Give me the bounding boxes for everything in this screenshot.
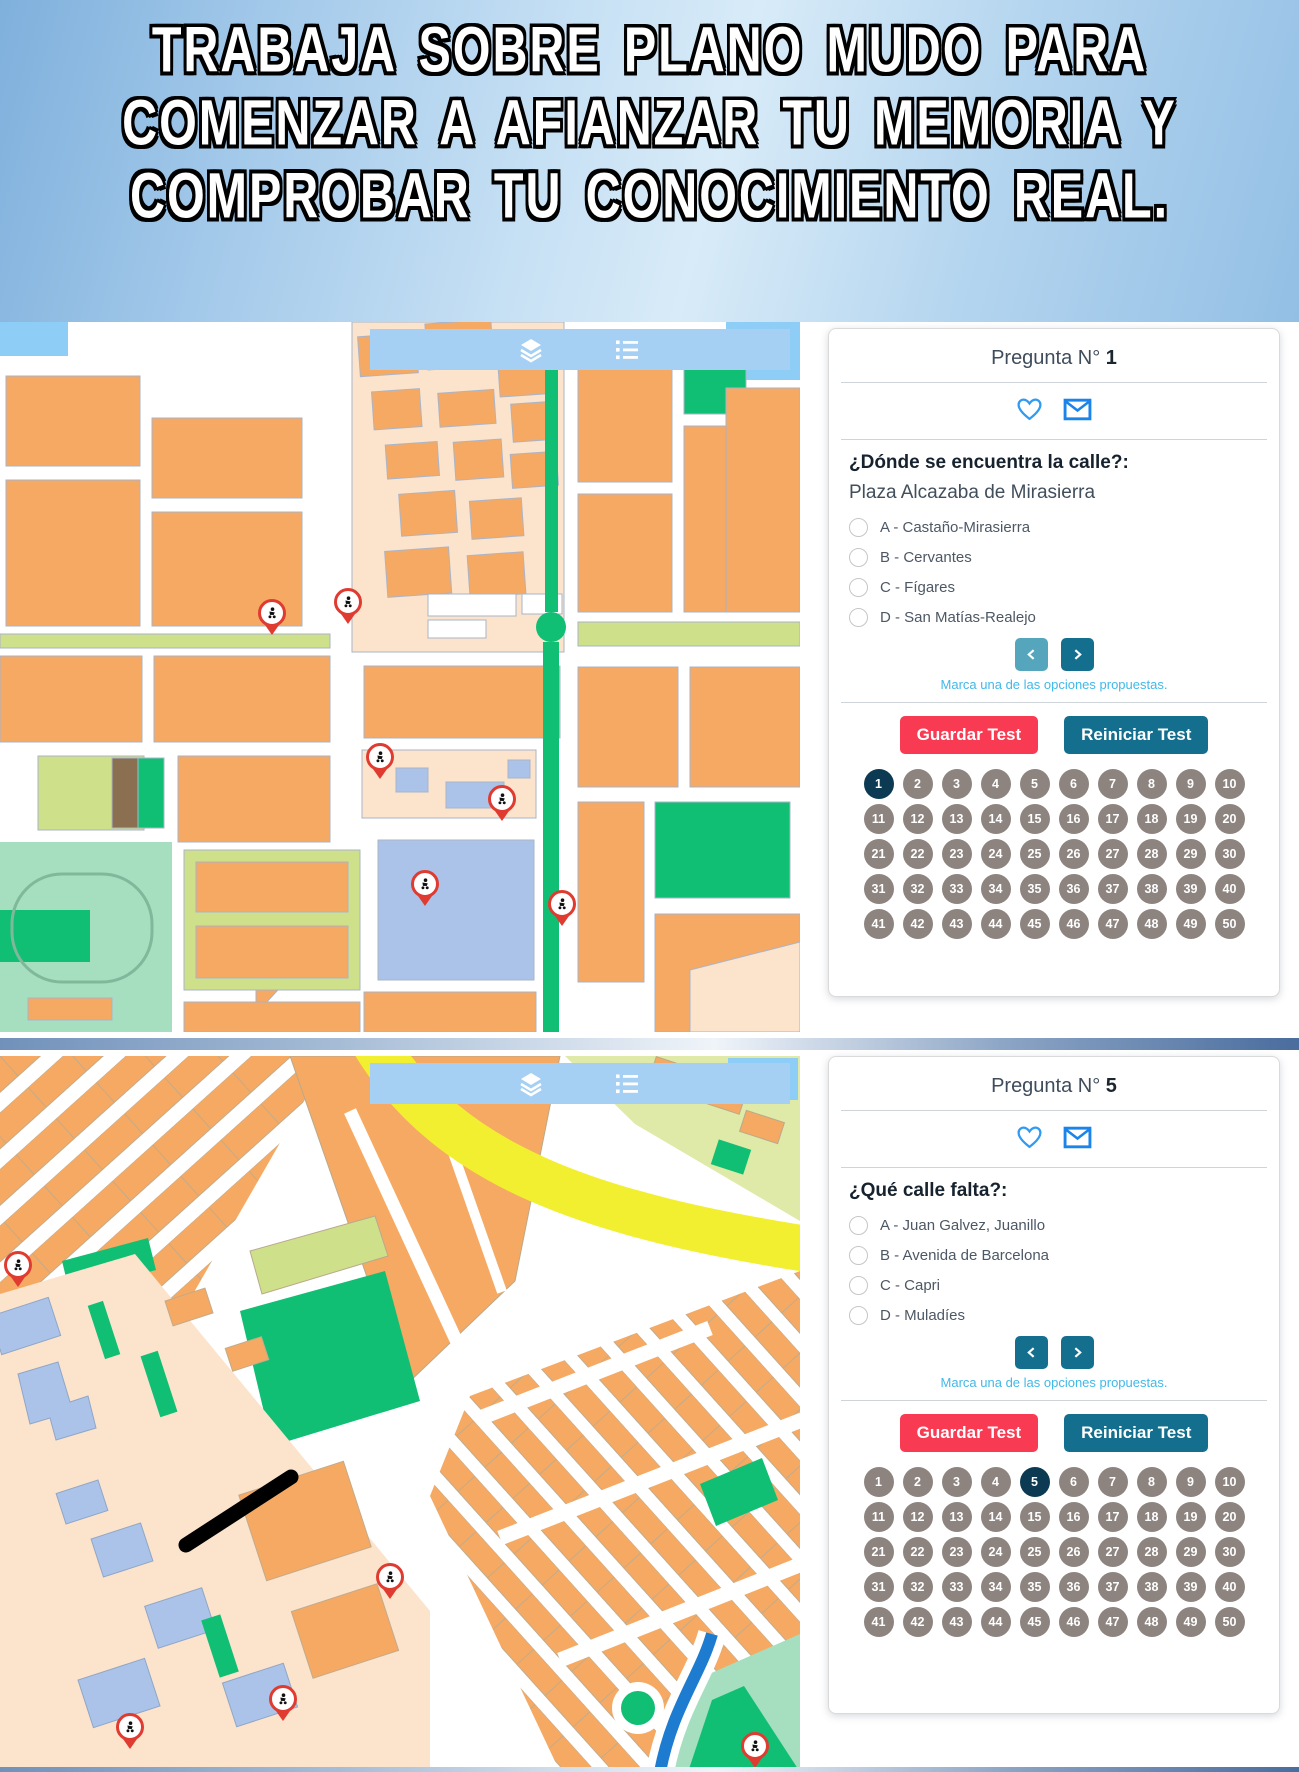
question-number-46[interactable]: 46 bbox=[1059, 909, 1089, 939]
answer-options: A - Juan Galvez, Juanillo B - Avenida de… bbox=[849, 1216, 1259, 1325]
question-number-29[interactable]: 29 bbox=[1176, 1537, 1206, 1567]
radio-button[interactable] bbox=[849, 578, 868, 597]
question-number-38[interactable]: 38 bbox=[1137, 874, 1167, 904]
question-number-11[interactable]: 11 bbox=[864, 804, 894, 834]
question-number-45[interactable]: 45 bbox=[1020, 909, 1050, 939]
map-marker-pin[interactable] bbox=[376, 1563, 404, 1601]
answer-option-a[interactable]: A - Castaño-Mirasierra bbox=[849, 518, 1259, 537]
question-number-16[interactable]: 16 bbox=[1059, 1502, 1089, 1532]
question-number-15[interactable]: 15 bbox=[1020, 1502, 1050, 1532]
map-toolbar bbox=[370, 329, 790, 370]
question-number-16[interactable]: 16 bbox=[1059, 804, 1089, 834]
question-number-23[interactable]: 23 bbox=[942, 1537, 972, 1567]
question-panel-2: Pregunta N° 5 ¿Qué calle falta?: A - Jua… bbox=[828, 1056, 1280, 1714]
question-number-7[interactable]: 7 bbox=[1098, 1467, 1128, 1497]
question-street-name: Plaza Alcazaba de Mirasierra bbox=[849, 482, 1259, 504]
answer-option-c[interactable]: C - Fígares bbox=[849, 578, 1259, 597]
instruction-hint: Marca una de las opciones propuestas. bbox=[849, 1375, 1259, 1390]
question-number-37[interactable]: 37 bbox=[1098, 1572, 1128, 1602]
question-number-7[interactable]: 7 bbox=[1098, 769, 1128, 799]
question-number-12[interactable]: 12 bbox=[903, 804, 933, 834]
option-label: B - Cervantes bbox=[880, 549, 972, 566]
question-number-34[interactable]: 34 bbox=[981, 1572, 1011, 1602]
question-number-22[interactable]: 22 bbox=[903, 1537, 933, 1567]
question-number-6[interactable]: 6 bbox=[1059, 1467, 1089, 1497]
question-number-25[interactable]: 25 bbox=[1020, 1537, 1050, 1567]
question-number-36[interactable]: 36 bbox=[1059, 1572, 1089, 1602]
question-number-20[interactable]: 20 bbox=[1215, 1502, 1245, 1532]
question-tools bbox=[849, 393, 1259, 429]
question-number-grid: 1234567891011121314151617181920212223242… bbox=[860, 769, 1248, 939]
question-number-40[interactable]: 40 bbox=[1215, 1572, 1245, 1602]
question-number-29[interactable]: 29 bbox=[1176, 839, 1206, 869]
radio-button[interactable] bbox=[849, 1306, 868, 1325]
question-number-49[interactable]: 49 bbox=[1176, 909, 1206, 939]
map-marker-pin[interactable] bbox=[366, 743, 394, 781]
question-nav bbox=[849, 638, 1259, 671]
divider bbox=[841, 1110, 1267, 1111]
save-test-button[interactable]: Guardar Test bbox=[900, 716, 1039, 754]
question-text: ¿Qué calle falta?: bbox=[849, 1180, 1259, 1202]
list-icon[interactable] bbox=[614, 337, 640, 363]
question-number-27[interactable]: 27 bbox=[1098, 1537, 1128, 1567]
map-marker-pin[interactable] bbox=[488, 785, 516, 823]
question-number-1[interactable]: 1 bbox=[864, 769, 894, 799]
map-marker-pin[interactable] bbox=[411, 870, 439, 908]
question-header: Pregunta N° 1 bbox=[849, 343, 1259, 372]
question-number-11[interactable]: 11 bbox=[864, 1502, 894, 1532]
question-number-3[interactable]: 3 bbox=[942, 769, 972, 799]
question-number-5[interactable]: 5 bbox=[1020, 769, 1050, 799]
instruction-hint: Marca una de las opciones propuestas. bbox=[849, 677, 1259, 692]
question-number-31[interactable]: 31 bbox=[864, 874, 894, 904]
radio-button[interactable] bbox=[849, 1246, 868, 1265]
section-divider bbox=[0, 1767, 1299, 1772]
question-number-49[interactable]: 49 bbox=[1176, 1607, 1206, 1637]
answer-option-b[interactable]: B - Cervantes bbox=[849, 548, 1259, 567]
question-panel-1: Pregunta N° 1 ¿Dónde se encuentra la cal… bbox=[828, 328, 1280, 997]
question-number-44[interactable]: 44 bbox=[981, 1607, 1011, 1637]
next-question-button[interactable] bbox=[1061, 1336, 1094, 1369]
question-number-47[interactable]: 47 bbox=[1098, 1607, 1128, 1637]
question-number-22[interactable]: 22 bbox=[903, 839, 933, 869]
question-number-36[interactable]: 36 bbox=[1059, 874, 1089, 904]
divider bbox=[841, 702, 1267, 703]
question-header: Pregunta N° 5 bbox=[849, 1071, 1259, 1100]
question-number-35[interactable]: 35 bbox=[1020, 874, 1050, 904]
radio-button[interactable] bbox=[849, 608, 868, 627]
question-number-45[interactable]: 45 bbox=[1020, 1607, 1050, 1637]
question-number-5[interactable]: 5 bbox=[1020, 1467, 1050, 1497]
layers-icon[interactable] bbox=[518, 1071, 544, 1097]
question-number-10[interactable]: 10 bbox=[1215, 1467, 1245, 1497]
question-number-19[interactable]: 19 bbox=[1176, 804, 1206, 834]
question-number-15[interactable]: 15 bbox=[1020, 804, 1050, 834]
question-number-18[interactable]: 18 bbox=[1137, 804, 1167, 834]
question-number-20[interactable]: 20 bbox=[1215, 804, 1245, 834]
question-number: 1 bbox=[1106, 347, 1117, 369]
divider bbox=[841, 1167, 1267, 1168]
radio-button[interactable] bbox=[849, 518, 868, 537]
question-number-14[interactable]: 14 bbox=[981, 804, 1011, 834]
next-question-button[interactable] bbox=[1061, 638, 1094, 671]
question-number-38[interactable]: 38 bbox=[1137, 1572, 1167, 1602]
option-label: C - Fígares bbox=[880, 579, 955, 596]
question-label: Pregunta N° bbox=[991, 1075, 1100, 1097]
question-number-2[interactable]: 2 bbox=[903, 769, 933, 799]
question-number-17[interactable]: 17 bbox=[1098, 804, 1128, 834]
question-number-9[interactable]: 9 bbox=[1176, 1467, 1206, 1497]
option-label: D - Muladíes bbox=[880, 1307, 965, 1324]
question-number-4[interactable]: 4 bbox=[981, 769, 1011, 799]
previous-question-button[interactable] bbox=[1015, 638, 1048, 671]
report-envelope-icon[interactable] bbox=[1063, 1125, 1092, 1155]
map-toolbar bbox=[370, 1063, 790, 1104]
option-label: D - San Matías-Realejo bbox=[880, 609, 1036, 626]
answer-option-d[interactable]: D - San Matías-Realejo bbox=[849, 608, 1259, 627]
question-number-24[interactable]: 24 bbox=[981, 839, 1011, 869]
reset-test-button[interactable]: Reiniciar Test bbox=[1064, 716, 1208, 754]
question-number-48[interactable]: 48 bbox=[1137, 1607, 1167, 1637]
map-marker-pin[interactable] bbox=[741, 1732, 769, 1770]
question-number-13[interactable]: 13 bbox=[942, 1502, 972, 1532]
question-number-24[interactable]: 24 bbox=[981, 1537, 1011, 1567]
test-actions: Guardar Test Reiniciar Test bbox=[849, 716, 1259, 754]
question-number-50[interactable]: 50 bbox=[1215, 1607, 1245, 1637]
question-number-32[interactable]: 32 bbox=[903, 1572, 933, 1602]
list-icon[interactable] bbox=[614, 1071, 640, 1097]
question-number-41[interactable]: 41 bbox=[864, 1607, 894, 1637]
question-number-6[interactable]: 6 bbox=[1059, 769, 1089, 799]
question-tools bbox=[849, 1121, 1259, 1157]
question-number-9[interactable]: 9 bbox=[1176, 769, 1206, 799]
question-number-8[interactable]: 8 bbox=[1137, 769, 1167, 799]
radio-button[interactable] bbox=[849, 1276, 868, 1295]
question-number-2[interactable]: 2 bbox=[903, 1467, 933, 1497]
question-number-47[interactable]: 47 bbox=[1098, 909, 1128, 939]
question-number-21[interactable]: 21 bbox=[864, 1537, 894, 1567]
question-number-3[interactable]: 3 bbox=[942, 1467, 972, 1497]
question-number-50[interactable]: 50 bbox=[1215, 909, 1245, 939]
question-number-30[interactable]: 30 bbox=[1215, 1537, 1245, 1567]
divider bbox=[841, 439, 1267, 440]
question-number-43[interactable]: 43 bbox=[942, 1607, 972, 1637]
question-number-46[interactable]: 46 bbox=[1059, 1607, 1089, 1637]
map-marker-pin[interactable] bbox=[334, 588, 362, 626]
radio-button[interactable] bbox=[849, 548, 868, 567]
hero-title-line: COMPROBAR TU CONOCIMIENTO REAL. bbox=[19, 160, 1279, 233]
quiz-map-1[interactable] bbox=[0, 322, 800, 1032]
radio-button[interactable] bbox=[849, 1216, 868, 1235]
option-label: C - Capri bbox=[880, 1277, 940, 1294]
question-number-35[interactable]: 35 bbox=[1020, 1572, 1050, 1602]
question-number-4[interactable]: 4 bbox=[981, 1467, 1011, 1497]
favorite-heart-icon[interactable] bbox=[1016, 396, 1043, 428]
question-number-1[interactable]: 1 bbox=[864, 1467, 894, 1497]
answer-option-c[interactable]: C - Capri bbox=[849, 1276, 1259, 1295]
reset-test-button[interactable]: Reiniciar Test bbox=[1064, 1414, 1208, 1452]
option-label: A - Juan Galvez, Juanillo bbox=[880, 1217, 1045, 1234]
map-marker-pin[interactable] bbox=[269, 1685, 297, 1723]
question-nav bbox=[849, 1336, 1259, 1369]
question-number-12[interactable]: 12 bbox=[903, 1502, 933, 1532]
question-number-48[interactable]: 48 bbox=[1137, 909, 1167, 939]
favorite-heart-icon[interactable] bbox=[1016, 1124, 1043, 1156]
map-marker-pin[interactable] bbox=[258, 599, 286, 637]
question-number-41[interactable]: 41 bbox=[864, 909, 894, 939]
city-map-graphic bbox=[0, 1056, 800, 1772]
question-number-23[interactable]: 23 bbox=[942, 839, 972, 869]
test-actions: Guardar Test Reiniciar Test bbox=[849, 1414, 1259, 1452]
answer-option-a[interactable]: A - Juan Galvez, Juanillo bbox=[849, 1216, 1259, 1235]
question-number: 5 bbox=[1106, 1075, 1117, 1097]
question-number-18[interactable]: 18 bbox=[1137, 1502, 1167, 1532]
question-number-42[interactable]: 42 bbox=[903, 1607, 933, 1637]
question-number-21[interactable]: 21 bbox=[864, 839, 894, 869]
hero-title-line: TRABAJA SOBRE PLANO MUDO PARA bbox=[19, 14, 1279, 87]
question-number-19[interactable]: 19 bbox=[1176, 1502, 1206, 1532]
save-test-button[interactable]: Guardar Test bbox=[900, 1414, 1039, 1452]
map-marker-pin[interactable] bbox=[4, 1251, 32, 1289]
section-divider bbox=[0, 1038, 1299, 1050]
question-label: Pregunta N° bbox=[991, 347, 1100, 369]
question-number-14[interactable]: 14 bbox=[981, 1502, 1011, 1532]
question-number-32[interactable]: 32 bbox=[903, 874, 933, 904]
layers-icon[interactable] bbox=[518, 337, 544, 363]
answer-options: A - Castaño-Mirasierra B - Cervantes C -… bbox=[849, 518, 1259, 627]
question-number-31[interactable]: 31 bbox=[864, 1572, 894, 1602]
question-number-10[interactable]: 10 bbox=[1215, 769, 1245, 799]
option-label: B - Avenida de Barcelona bbox=[880, 1247, 1049, 1264]
answer-option-d[interactable]: D - Muladíes bbox=[849, 1306, 1259, 1325]
hero-banner: TRABAJA SOBRE PLANO MUDO PARA COMENZAR A… bbox=[0, 0, 1299, 322]
question-number-40[interactable]: 40 bbox=[1215, 874, 1245, 904]
question-number-33[interactable]: 33 bbox=[942, 1572, 972, 1602]
divider bbox=[841, 382, 1267, 383]
option-label: A - Castaño-Mirasierra bbox=[880, 519, 1030, 536]
question-number-26[interactable]: 26 bbox=[1059, 1537, 1089, 1567]
question-number-27[interactable]: 27 bbox=[1098, 839, 1128, 869]
question-number-28[interactable]: 28 bbox=[1137, 839, 1167, 869]
question-number-13[interactable]: 13 bbox=[942, 804, 972, 834]
question-number-17[interactable]: 17 bbox=[1098, 1502, 1128, 1532]
quiz-map-2[interactable] bbox=[0, 1056, 800, 1772]
answer-option-b[interactable]: B - Avenida de Barcelona bbox=[849, 1246, 1259, 1265]
map-marker-pin[interactable] bbox=[548, 890, 576, 928]
previous-question-button[interactable] bbox=[1015, 1336, 1048, 1369]
question-number-44[interactable]: 44 bbox=[981, 909, 1011, 939]
divider bbox=[841, 1400, 1267, 1401]
question-number-26[interactable]: 26 bbox=[1059, 839, 1089, 869]
question-number-42[interactable]: 42 bbox=[903, 909, 933, 939]
hero-title-line: COMENZAR A AFIANZAR TU MEMORIA Y bbox=[19, 87, 1279, 160]
question-number-28[interactable]: 28 bbox=[1137, 1537, 1167, 1567]
question-number-39[interactable]: 39 bbox=[1176, 1572, 1206, 1602]
question-number-33[interactable]: 33 bbox=[942, 874, 972, 904]
question-number-8[interactable]: 8 bbox=[1137, 1467, 1167, 1497]
question-number-30[interactable]: 30 bbox=[1215, 839, 1245, 869]
city-map-graphic bbox=[0, 322, 800, 1032]
map-marker-pin[interactable] bbox=[116, 1713, 144, 1751]
question-number-25[interactable]: 25 bbox=[1020, 839, 1050, 869]
question-number-39[interactable]: 39 bbox=[1176, 874, 1206, 904]
report-envelope-icon[interactable] bbox=[1063, 397, 1092, 427]
question-number-37[interactable]: 37 bbox=[1098, 874, 1128, 904]
question-number-grid: 1234567891011121314151617181920212223242… bbox=[860, 1467, 1248, 1637]
question-number-34[interactable]: 34 bbox=[981, 874, 1011, 904]
question-text: ¿Dónde se encuentra la calle?: bbox=[849, 452, 1259, 474]
question-number-43[interactable]: 43 bbox=[942, 909, 972, 939]
hero-title: TRABAJA SOBRE PLANO MUDO PARA COMENZAR A… bbox=[19, 14, 1279, 233]
